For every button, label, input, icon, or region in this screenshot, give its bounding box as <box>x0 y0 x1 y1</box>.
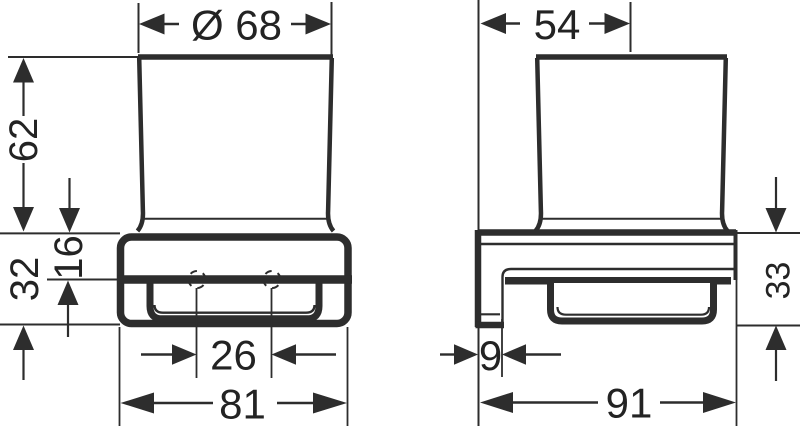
svg-text:Ø 68: Ø 68 <box>191 2 282 49</box>
svg-text:9: 9 <box>479 332 502 379</box>
svg-text:16: 16 <box>47 235 91 280</box>
svg-text:32: 32 <box>3 257 47 302</box>
svg-text:81: 81 <box>219 381 266 426</box>
svg-text:62: 62 <box>2 118 46 163</box>
svg-text:54: 54 <box>534 1 581 48</box>
svg-text:33: 33 <box>760 262 798 300</box>
svg-text:26: 26 <box>210 332 257 379</box>
svg-text:91: 91 <box>606 380 653 426</box>
